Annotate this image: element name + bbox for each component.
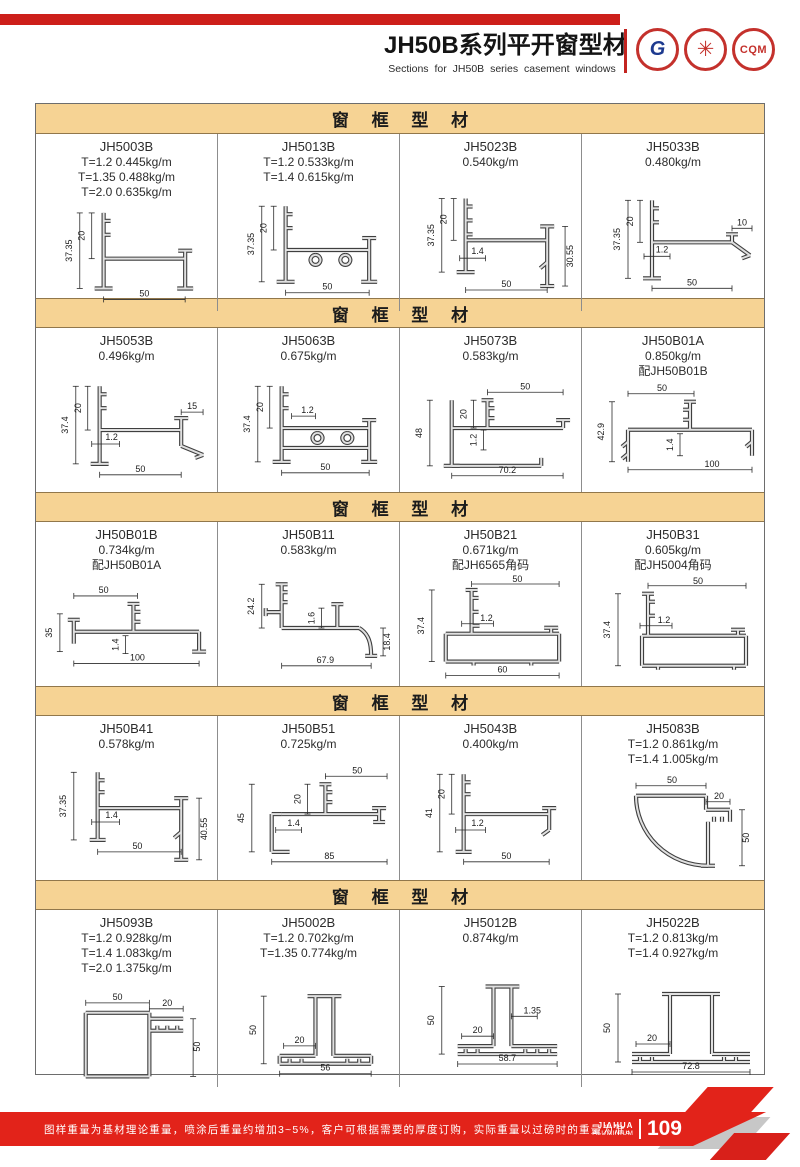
profile-drawing: 502072.8 — [584, 961, 762, 1085]
dimension-label: 1.35 — [524, 1005, 541, 1015]
dimension-label: 20 — [73, 403, 83, 413]
profile-spec: T=1.2 0.702kg/m — [220, 931, 397, 946]
profile-code: JH50B41 — [38, 721, 215, 737]
dimension-label: 37.4 — [60, 416, 70, 433]
profile-code: JH5063B — [220, 333, 397, 349]
profile-cell: JH5012B0.874kg/m50201.3558.7 — [400, 910, 582, 1087]
dimension-label: 37.35 — [246, 232, 256, 254]
dimension-label: 37.35 — [64, 240, 74, 262]
dimension-label: 40.55 — [199, 818, 209, 840]
profile-cell: JH5073B0.583kg/m48201.25070.2 — [400, 328, 582, 492]
profile-spec: T=2.0 1.375kg/m — [38, 961, 215, 976]
certification-logos: G ✳ CQM — [636, 28, 775, 71]
profile-code: JH50B31 — [584, 527, 762, 543]
dimension-label: 85 — [324, 851, 334, 861]
cqm-certification-logo-icon: CQM — [732, 28, 775, 71]
profile-row: JH5003BT=1.2 0.445kg/mT=1.35 0.488kg/mT=… — [36, 134, 764, 298]
brand-separator — [639, 1119, 641, 1139]
profile-inner — [181, 446, 203, 455]
profile-code: JH5022B — [584, 915, 762, 931]
profile-drawing: 502056 — [220, 961, 397, 1085]
profile-spec: 配JH5004角码 — [584, 558, 762, 573]
dimension-label: 35 — [44, 627, 54, 637]
profile-code: JH5043B — [402, 721, 579, 737]
dimension-label: 50 — [693, 575, 703, 585]
footer-brand: JIAHUA ALUMINIUM 109 — [592, 1112, 682, 1146]
dimension-label: 50 — [520, 381, 530, 391]
profile-spec: 0.540kg/m — [402, 155, 579, 170]
dimension-label: 67.9 — [317, 655, 334, 665]
profile-cell: JH5003BT=1.2 0.445kg/mT=1.35 0.488kg/mT=… — [36, 134, 218, 311]
dimension-label: 50 — [248, 1024, 258, 1034]
profile-spec: 0.725kg/m — [220, 737, 397, 752]
dimension-label: 1.2 — [656, 244, 669, 254]
dimension-label: 72.8 — [682, 1061, 700, 1071]
profile-spec: T=1.2 0.861kg/m — [584, 737, 762, 752]
footer-band: 图样重量为基材理论重量，喷涂后重量约增加3~5%，客户可根据需要的厚度订购，实际… — [0, 1112, 770, 1146]
gb-certification-logo-icon: G — [636, 28, 679, 71]
profile-spec: 0.480kg/m — [584, 155, 762, 170]
section-header: 窗 框 型 材 — [36, 104, 764, 134]
profile-drawing: 35501.4100 — [38, 573, 215, 685]
dimension-label: 50 — [741, 832, 751, 842]
dimension-label: 1.2 — [658, 614, 671, 624]
profile-drawing: 37.4201.250 — [220, 364, 397, 490]
profile-spec: T=1.2 0.445kg/m — [38, 155, 215, 170]
dimension-label: 1.4 — [471, 246, 483, 256]
dimension-label: 50 — [320, 462, 330, 472]
profile-code: JH5073B — [402, 333, 579, 349]
dimension-label: 42.9 — [596, 422, 606, 440]
profile-spec: 0.583kg/m — [220, 543, 397, 558]
dimension-label: 18.4 — [382, 633, 392, 650]
profile-inner — [732, 242, 750, 255]
dimension-label: 100 — [704, 458, 719, 468]
dimension-label: 50 — [352, 765, 362, 775]
profile-code: JH5002B — [220, 915, 397, 931]
dimension-label: 70.2 — [499, 465, 516, 475]
dimension-label: 20 — [647, 1033, 657, 1043]
dimension-label: 50 — [602, 1022, 612, 1032]
profile-cell: JH5053B0.496kg/m37.4201.21550 — [36, 328, 218, 492]
dimension-label: 20 — [437, 789, 447, 799]
profile-spec: T=1.2 0.928kg/m — [38, 931, 215, 946]
footer-page-number: 109 — [647, 1117, 682, 1141]
dimension-label: 1.4 — [287, 818, 299, 828]
profile-spec: T=1.4 0.927kg/m — [584, 946, 762, 961]
profile-cell: JH5013BT=1.2 0.533kg/mT=1.4 0.615kg/m37.… — [218, 134, 400, 311]
top-red-bar — [0, 14, 620, 25]
dimension-label: 50 — [501, 279, 511, 289]
profile-spec: 0.583kg/m — [402, 349, 579, 364]
profile-spec: 0.578kg/m — [38, 737, 215, 752]
profile-cell: JH5043B0.400kg/m41201.250 — [400, 716, 582, 880]
dimension-label: 1.2 — [301, 405, 313, 415]
profile-code: JH50B01A — [584, 333, 762, 349]
brand-name: JIAHUA ALUMINIUM — [592, 1121, 633, 1138]
page-header: JH50B系列平开窗型材 Sections for JH50B series c… — [384, 25, 620, 75]
dimension-label: 50 — [135, 464, 145, 474]
profile-cell: JH50B110.583kg/m24.21.618.467.9 — [218, 522, 400, 686]
star-glyph: ✳ — [697, 39, 715, 60]
dimension-label: 20 — [293, 794, 303, 804]
section-header: 窗 框 型 材 — [36, 492, 764, 522]
page-subtitle: Sections for JH50B series casement windo… — [384, 63, 620, 75]
profile-drawing: 37.352050 — [220, 185, 397, 309]
dimension-label: 20 — [439, 214, 449, 224]
section-header: 窗 框 型 材 — [36, 686, 764, 716]
profile-code: JH5003B — [38, 139, 215, 155]
dimension-label: 58.7 — [499, 1053, 516, 1063]
cqm-logo-text: CQM — [740, 44, 767, 56]
profile-code: JH50B51 — [220, 721, 397, 737]
dimension-label: 50 — [426, 1015, 436, 1025]
profile-spec: 0.874kg/m — [402, 931, 579, 946]
footer-note: 图样重量为基材理论重量，喷涂后重量约增加3~5%，客户可根据需要的厚度订购，实际… — [44, 1112, 638, 1146]
profile-spec: 配JH6565角码 — [402, 558, 579, 573]
dimension-label: 30.55 — [565, 245, 575, 267]
profile-cell: JH50B310.605kg/m配JH5004角码37.41.250 — [582, 522, 764, 686]
dimension-label: 37.35 — [612, 228, 622, 251]
profile-code: JH5013B — [220, 139, 397, 155]
profile-spec: 0.496kg/m — [38, 349, 215, 364]
profile-spec: 配JH50B01A — [38, 558, 215, 573]
dimension-label: 48 — [414, 428, 424, 438]
profile-drawing: 37.4201.21550 — [38, 364, 215, 490]
profile-drawing: 45201.45085 — [220, 752, 397, 878]
profile-drawing: 37.35201.21050 — [584, 170, 762, 309]
dimension-label: 37.4 — [416, 617, 426, 634]
profile-code: JH5093B — [38, 915, 215, 931]
dimension-label: 20 — [295, 1034, 305, 1044]
quality-star-logo-icon: ✳ — [684, 28, 727, 71]
dimension-label: 1.2 — [471, 818, 483, 828]
dimension-label: 20 — [459, 409, 469, 419]
dimension-label: 20 — [259, 223, 269, 233]
profile-drawing: 37.41.25060 — [402, 573, 579, 685]
profile-spec: T=1.4 1.083kg/m — [38, 946, 215, 961]
profile-outline — [636, 795, 708, 865]
profile-code: JH50B21 — [402, 527, 579, 543]
dimension-label: 45 — [236, 813, 246, 823]
profile-row: JH50B01B0.734kg/m配JH50B01A35501.4100JH50… — [36, 522, 764, 686]
profile-drawing: 41201.250 — [402, 752, 579, 878]
profile-cell: JH5083BT=1.2 0.861kg/mT=1.4 1.005kg/m502… — [582, 716, 764, 880]
profile-spec: 0.675kg/m — [220, 349, 397, 364]
profile-drawing: 37.35201.430.5550 — [402, 170, 579, 309]
dimension-label: 50 — [322, 281, 332, 291]
dimension-label: 50 — [113, 992, 123, 1002]
profile-drawing: 37.352050 — [38, 199, 215, 308]
section-header: 窗 框 型 材 — [36, 880, 764, 910]
profile-spec: 0.734kg/m — [38, 543, 215, 558]
dimension-label: 50 — [512, 574, 522, 584]
profile-spec: T=1.35 0.488kg/m — [38, 170, 215, 185]
dimension-label: 50 — [667, 774, 677, 784]
profile-code: JH5033B — [584, 139, 762, 155]
profile-drawing: 50201.3558.7 — [402, 946, 579, 1085]
dimension-label: 20 — [473, 1025, 483, 1035]
dimension-label: 50 — [132, 841, 142, 851]
profile-spec: T=1.2 0.533kg/m — [220, 155, 397, 170]
profile-table: 窗 框 型 材JH5003BT=1.2 0.445kg/mT=1.35 0.48… — [35, 103, 765, 1075]
dimension-label: 1.4 — [665, 438, 675, 451]
profile-cell: JH5023B0.540kg/m37.35201.430.5550 — [400, 134, 582, 311]
page-title: JH50B系列平开窗型材 — [384, 25, 620, 60]
dimension-label: 100 — [130, 652, 145, 662]
profile-drawing: 502050 — [584, 767, 762, 879]
profile-cell: JH50B01B0.734kg/m配JH50B01A35501.4100 — [36, 522, 218, 686]
profile-spec: 0.400kg/m — [402, 737, 579, 752]
dimension-label: 56 — [320, 1062, 330, 1072]
profile-drawing: 42.91.450100 — [584, 379, 762, 491]
profile-drawing: 24.21.618.467.9 — [220, 558, 397, 684]
profile-code: JH5083B — [584, 721, 762, 737]
dimension-label: 50 — [687, 277, 697, 287]
profile-cell: JH50B410.578kg/m37.351.440.5550 — [36, 716, 218, 880]
profile-code: JH5053B — [38, 333, 215, 349]
dimension-label: 1.2 — [469, 434, 479, 446]
profile-cell: JH5093BT=1.2 0.928kg/mT=1.4 1.083kg/mT=2… — [36, 910, 218, 1087]
profile-cell: JH50B210.671kg/m配JH6565角码37.41.25060 — [400, 522, 582, 686]
dimension-label: 20 — [255, 402, 265, 412]
profile-spec: T=2.0 0.635kg/m — [38, 185, 215, 200]
profile-spec: T=1.4 1.005kg/m — [584, 752, 762, 767]
dimension-label: 1.2 — [480, 612, 492, 622]
profile-row: JH50B410.578kg/m37.351.440.5550JH50B510.… — [36, 716, 764, 880]
dimension-label: 37.4 — [602, 620, 612, 638]
profile-drawing: 502050 — [38, 975, 215, 1084]
dimension-label: 37.35 — [426, 224, 436, 246]
profile-spec: 配JH50B01B — [584, 364, 762, 379]
profile-spec: 0.850kg/m — [584, 349, 762, 364]
profile-drawing: 48201.25070.2 — [402, 364, 579, 490]
profile-cell: JH5022BT=1.2 0.813kg/mT=1.4 0.927kg/m502… — [582, 910, 764, 1087]
dimension-label: 10 — [737, 217, 747, 227]
profile-row: JH5053B0.496kg/m37.4201.21550JH5063B0.67… — [36, 328, 764, 492]
dimension-label: 50 — [99, 584, 109, 594]
profile-cell: JH5033B0.480kg/m37.35201.21050 — [582, 134, 764, 311]
profile-cell: JH50B01A0.850kg/m配JH50B01B42.91.450100 — [582, 328, 764, 492]
dimension-label: 1.2 — [105, 432, 117, 442]
dimension-label: 50 — [139, 289, 149, 299]
profile-code: JH50B01B — [38, 527, 215, 543]
profile-spec: 0.671kg/m — [402, 543, 579, 558]
dimension-label: 20 — [625, 216, 635, 226]
profile-row: JH5093BT=1.2 0.928kg/mT=1.4 1.083kg/mT=2… — [36, 910, 764, 1074]
dimension-label: 20 — [714, 790, 724, 800]
dimension-label: 15 — [187, 401, 197, 411]
header-divider — [624, 29, 627, 73]
profile-code: JH5012B — [402, 915, 579, 931]
dimension-label: 1.4 — [105, 810, 117, 820]
profile-code: JH5023B — [402, 139, 579, 155]
profile-code: JH50B11 — [220, 527, 397, 543]
dimension-label: 41 — [424, 808, 434, 818]
profile-cell: JH50B510.725kg/m45201.45085 — [218, 716, 400, 880]
dimension-label: 20 — [77, 231, 87, 241]
profile-spec: T=1.35 0.774kg/m — [220, 946, 397, 961]
dimension-label: 50 — [192, 1042, 202, 1052]
brand-line1: JIAHUA — [592, 1121, 633, 1130]
profile-drawing: 37.41.250 — [584, 573, 762, 685]
dimension-label: 60 — [497, 664, 507, 674]
profile-cell: JH5002BT=1.2 0.702kg/mT=1.35 0.774kg/m50… — [218, 910, 400, 1087]
footer-decoration-red-top — [684, 1087, 773, 1113]
profile-spec: T=1.4 0.615kg/m — [220, 170, 397, 185]
dimension-label: 50 — [501, 851, 511, 861]
profile-spec: T=1.2 0.813kg/m — [584, 931, 762, 946]
dimension-label: 37.4 — [242, 415, 252, 432]
profile-cell: JH5063B0.675kg/m37.4201.250 — [218, 328, 400, 492]
brand-line2: ALUMINIUM — [592, 1130, 633, 1137]
dimension-label: 50 — [657, 382, 667, 392]
dimension-label: 37.35 — [58, 795, 68, 817]
profile-drawing: 37.351.440.5550 — [38, 752, 215, 878]
dimension-label: 20 — [162, 998, 172, 1008]
dimension-label: 24.2 — [246, 597, 256, 614]
gb-logo-letter: G — [650, 38, 666, 61]
profile-spec: 0.605kg/m — [584, 543, 762, 558]
dimension-label: 1.6 — [306, 612, 316, 624]
dimension-label: 1.4 — [111, 638, 121, 650]
